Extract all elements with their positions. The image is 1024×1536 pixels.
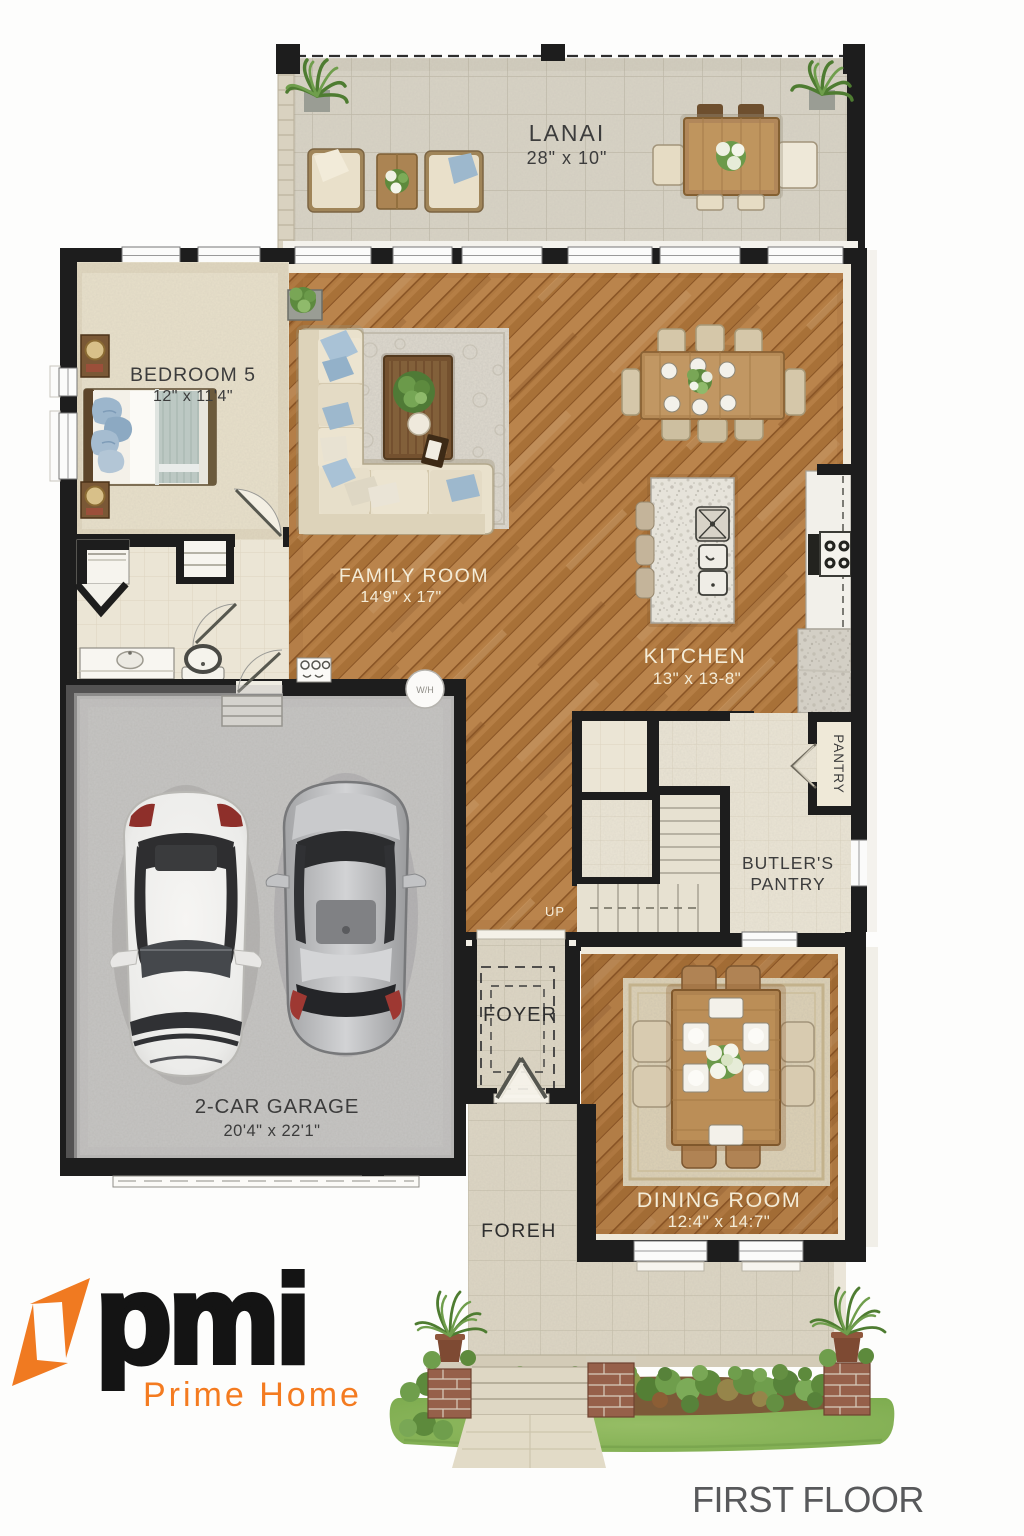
svg-text:PANTRY: PANTRY — [831, 734, 846, 794]
svg-text:UP: UP — [545, 904, 565, 919]
svg-text:Prime Home: Prime Home — [143, 1376, 362, 1414]
svg-text:12" x 11'4": 12" x 11'4" — [153, 388, 233, 405]
svg-text:FOREH: FOREH — [481, 1220, 557, 1242]
svg-text:20'4" x 22'1": 20'4" x 22'1" — [224, 1122, 321, 1140]
svg-text:BUTLER'S: BUTLER'S — [742, 853, 834, 873]
svg-text:12:4" x 14:7": 12:4" x 14:7" — [668, 1212, 771, 1231]
svg-text:pmi: pmi — [96, 1251, 307, 1389]
svg-text:BEDROOM 5: BEDROOM 5 — [130, 364, 256, 386]
svg-text:PANTRY: PANTRY — [750, 874, 825, 894]
svg-text:FIRST FLOOR: FIRST FLOOR — [692, 1479, 924, 1520]
svg-text:28" x 10": 28" x 10" — [527, 148, 608, 168]
svg-text:LANAI: LANAI — [529, 120, 605, 146]
svg-text:FAMILY ROOM: FAMILY ROOM — [339, 565, 489, 587]
svg-text:13" x 13-8": 13" x 13-8" — [653, 669, 741, 688]
svg-text:DINING ROOM: DINING ROOM — [637, 1188, 802, 1212]
svg-text:2-CAR GARAGE: 2-CAR GARAGE — [195, 1095, 360, 1118]
svg-text:14'9" x 17": 14'9" x 17" — [360, 589, 441, 606]
svg-text:W/H: W/H — [416, 685, 434, 695]
svg-text:KITCHEN: KITCHEN — [644, 645, 747, 668]
svg-text:FOYER: FOYER — [483, 1004, 557, 1026]
